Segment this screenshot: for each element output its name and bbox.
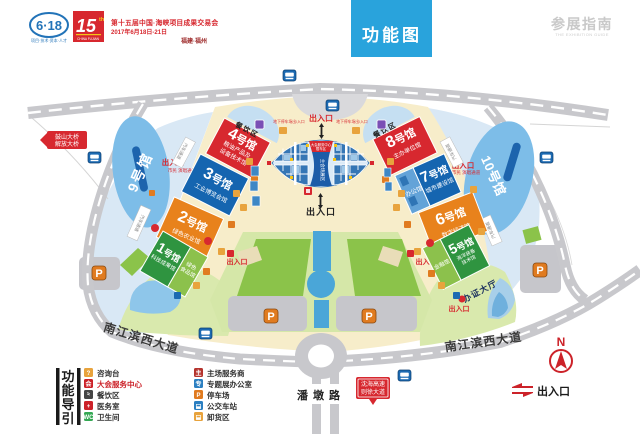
svg-text:则徐大道: 则徐大道 xyxy=(361,388,385,396)
svg-text:医务室: 医务室 xyxy=(97,401,120,411)
svg-text:15: 15 xyxy=(76,16,97,36)
svg-text:出入口: 出入口 xyxy=(227,257,248,266)
svg-text:功: 功 xyxy=(61,369,74,384)
svg-text:出入口: 出入口 xyxy=(306,206,336,217)
svg-text:限车区: 限车区 xyxy=(316,146,327,151)
svg-text:CHINA FUJIAN: CHINA FUJIAN xyxy=(77,37,99,41)
svg-text:地下停车场出/入口: 地下停车场出/入口 xyxy=(336,119,368,124)
svg-text:6·18: 6·18 xyxy=(36,18,62,33)
svg-text:P: P xyxy=(196,393,200,399)
svg-text:咨询台: 咨询台 xyxy=(97,368,120,378)
svg-text:餐饮区: 餐饮区 xyxy=(96,390,120,400)
svg-text:?: ? xyxy=(87,371,91,377)
svg-text:+: + xyxy=(87,404,91,410)
svg-text:出入口: 出入口 xyxy=(309,113,333,123)
svg-text:专: 专 xyxy=(195,380,201,388)
svg-text:解放大桥: 解放大桥 xyxy=(55,140,79,148)
svg-text:鼓山大桥: 鼓山大桥 xyxy=(55,133,79,141)
svg-text:⬓: ⬓ xyxy=(196,404,202,410)
svg-text:专题展办公室: 专题展办公室 xyxy=(207,379,252,389)
svg-text:第十五届中国·海峡项目成果交易会: 第十五届中国·海峡项目成果交易会 xyxy=(111,18,218,27)
svg-text:沈海高速: 沈海高速 xyxy=(361,380,385,388)
svg-text:2017年6月18日-21日: 2017年6月18日-21日 xyxy=(111,28,167,36)
svg-text:引: 引 xyxy=(61,411,74,426)
svg-text:项目·技术·资本·人才: 项目·技术·资本·人才 xyxy=(31,37,67,43)
svg-text:主场服务商: 主场服务商 xyxy=(207,368,245,378)
svg-text:停车场: 停车场 xyxy=(207,390,230,400)
svg-text:会: 会 xyxy=(85,380,92,388)
svg-text:P: P xyxy=(365,311,372,323)
svg-text:功能图: 功能图 xyxy=(362,25,422,45)
svg-text:市民 演唱通道: 市民 演唱通道 xyxy=(452,169,481,176)
svg-text:⺀: ⺀ xyxy=(85,392,91,399)
svg-text:P: P xyxy=(95,268,102,280)
svg-text:出入口: 出入口 xyxy=(537,384,570,398)
svg-text:潘墩路: 潘墩路 xyxy=(297,388,345,402)
svg-text:主: 主 xyxy=(195,369,201,377)
svg-text:主会场展区: 主会场展区 xyxy=(319,159,326,182)
svg-text:P: P xyxy=(536,265,543,277)
svg-text:WC: WC xyxy=(84,415,95,421)
svg-text:th: th xyxy=(99,17,105,23)
svg-text:参展指南: 参展指南 xyxy=(551,16,613,32)
svg-text:卫生间: 卫生间 xyxy=(97,412,120,422)
svg-text:⬓: ⬓ xyxy=(196,415,202,421)
svg-text:能: 能 xyxy=(61,383,74,398)
svg-text:公交车站: 公交车站 xyxy=(207,401,237,411)
svg-text:P: P xyxy=(267,311,274,323)
svg-text:地下停车场出/入口: 地下停车场出/入口 xyxy=(273,119,305,124)
svg-text:THE EXHIBITION GUIDE: THE EXHIBITION GUIDE xyxy=(555,32,609,37)
svg-text:导: 导 xyxy=(61,397,74,412)
svg-text:N: N xyxy=(557,335,566,349)
svg-text:福建·福州: 福建·福州 xyxy=(180,37,207,45)
svg-text:出入口: 出入口 xyxy=(449,304,470,313)
svg-text:大会服务中心: 大会服务中心 xyxy=(97,379,142,389)
svg-text:卸货区: 卸货区 xyxy=(207,412,230,422)
